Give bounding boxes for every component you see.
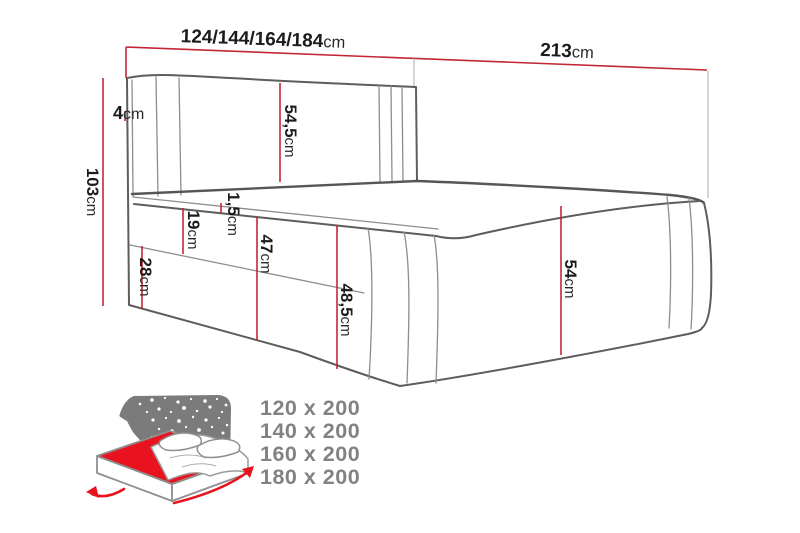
dim-side-height-label: 47cm — [257, 235, 276, 274]
size-options-list: 120 x 200 140 x 200 160 x 200 180 x 200 — [260, 396, 360, 489]
size-option: 140 x 200 — [260, 419, 360, 443]
dim-total-height-label: 103cm — [83, 168, 102, 216]
headboard-pleat — [379, 86, 380, 181]
size-option: 120 x 200 — [260, 396, 360, 420]
mattress-welt-line — [133, 197, 438, 229]
size-option: 180 x 200 — [260, 465, 360, 489]
dim-top-line — [126, 47, 707, 70]
foot-corner-seam — [689, 198, 693, 329]
bed-drawing — [127, 75, 711, 386]
dimension-labels: 124/144/164/184cm 213cm 4cm 103cm 54,5cm… — [83, 26, 594, 336]
size-option: 160 x 200 — [260, 442, 360, 466]
headboard-pleat — [402, 87, 403, 181]
dim-upper-side-label: 19cm — [184, 211, 203, 250]
headboard-top-edge — [127, 75, 416, 87]
base-bottom-edge — [129, 305, 702, 386]
front-corner-seam — [434, 235, 438, 383]
dim-wing-label: 4cm — [113, 103, 144, 123]
storage-seam-line — [130, 245, 364, 293]
dim-foot-height-label: 54cm — [561, 260, 580, 299]
front-corner-seam — [368, 228, 372, 379]
foot-corner-seam — [667, 197, 671, 328]
dim-length-label: 213cm — [540, 40, 595, 63]
storage-bed-icon — [86, 395, 254, 503]
dim-headboard-label: 54,5cm — [281, 104, 300, 157]
headboard-pleat — [156, 77, 158, 196]
arrowhead — [86, 486, 99, 498]
headboard-left-inner-edge — [132, 80, 133, 196]
headboard-pleat — [179, 78, 181, 195]
dim-width-label: 124/144/164/184cm — [180, 26, 345, 53]
front-corner-seam — [404, 232, 409, 383]
bed-dimension-diagram: 124/144/164/184cm 213cm 4cm 103cm 54,5cm… — [0, 0, 800, 533]
headboard-pleat — [391, 86, 392, 181]
dim-welt-label: 1,5cm — [224, 192, 243, 236]
dim-side-height-outer-label: 48,5cm — [337, 283, 356, 336]
headboard-right-edge — [416, 87, 417, 181]
dim-lower-side-label: 28cm — [136, 258, 155, 297]
diagram-canvas: 124/144/164/184cm 213cm 4cm 103cm 54,5cm… — [0, 0, 800, 533]
base-right-edge — [702, 203, 711, 328]
mattress-top-edge — [132, 181, 704, 203]
dimension-lines — [103, 47, 708, 369]
